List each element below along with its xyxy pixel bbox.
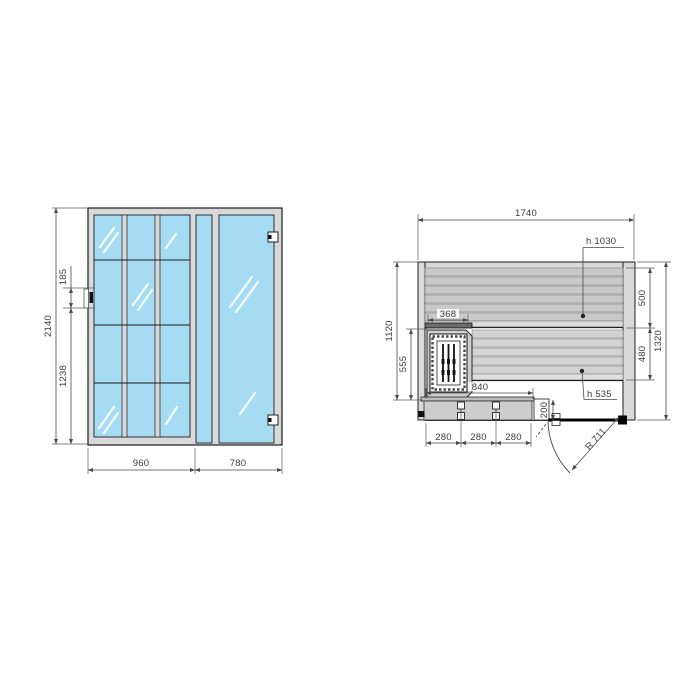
dim-heater-zone-depth: 555 bbox=[398, 356, 409, 372]
frame-fitting-latch-icon bbox=[90, 292, 94, 303]
mullion-2 bbox=[155, 215, 160, 437]
heater-niche-edge bbox=[425, 323, 472, 328]
dim-front-height: 2140 bbox=[43, 315, 54, 337]
glass-wall-left bbox=[94, 215, 190, 437]
lower-bench bbox=[472, 330, 623, 381]
technical-drawing: 2140 185 1238 960 780 bbox=[0, 0, 700, 700]
dim-front-bench-length: 840 bbox=[472, 382, 488, 393]
front-bench-top bbox=[424, 401, 532, 420]
dim-front-offset-bottom: 1238 bbox=[58, 365, 69, 387]
dim-plan-width: 1740 bbox=[515, 208, 537, 219]
dim-leg-spacing-1: 280 bbox=[435, 432, 451, 443]
door-hinge-top-icon bbox=[268, 232, 278, 242]
dim-plan-depth: 1320 bbox=[653, 330, 664, 352]
dim-door-radius: R 711 bbox=[583, 426, 608, 452]
dim-front-offset-top: 185 bbox=[58, 269, 69, 285]
wall-right bbox=[623, 262, 635, 420]
door-hinge-icon bbox=[618, 416, 627, 425]
door-swing-arc bbox=[548, 420, 570, 473]
dim-plan-inner-depth: 1120 bbox=[384, 320, 395, 341]
sauna-drawing-canvas: 2140 185 1238 960 780 bbox=[0, 0, 700, 700]
heating-elements-icon bbox=[442, 344, 456, 382]
dim-leg-spacing-3: 280 bbox=[505, 432, 521, 443]
dim-bench-upper-height: h 1030 bbox=[586, 236, 616, 247]
dim-leg-spacing-2: 280 bbox=[470, 432, 486, 443]
wall-left bbox=[418, 262, 425, 420]
dim-front-width-left: 960 bbox=[133, 458, 149, 469]
plan-view: R 711 1740 1320 500 480 1120 bbox=[384, 208, 671, 473]
front-elevation-view: 2140 185 1238 960 780 bbox=[43, 208, 282, 474]
bench-leg-icon bbox=[493, 402, 500, 409]
dim-step-depth: 200 bbox=[539, 402, 550, 418]
wall-fixture-icon bbox=[419, 411, 425, 417]
door-handle-icon bbox=[552, 421, 560, 426]
mullion-1 bbox=[122, 215, 127, 437]
glass-door bbox=[219, 215, 274, 443]
frame-fitting bbox=[84, 289, 89, 308]
dim-front-width-right: 780 bbox=[230, 458, 246, 469]
door: R 711 bbox=[536, 414, 627, 474]
door-hinge-bottom-icon bbox=[268, 415, 278, 425]
bench-leg-icon bbox=[458, 402, 465, 409]
front-bench bbox=[421, 397, 534, 420]
front-bench-rail bbox=[421, 397, 534, 401]
dim-bench-upper-depth: 500 bbox=[637, 290, 648, 306]
glass-side-strip bbox=[196, 215, 212, 443]
heater bbox=[425, 323, 472, 398]
dim-bench-lower-depth: 480 bbox=[637, 346, 648, 362]
dim-heater-width: 368 bbox=[440, 309, 456, 320]
dim-bench-lower-height: h 535 bbox=[587, 389, 612, 400]
